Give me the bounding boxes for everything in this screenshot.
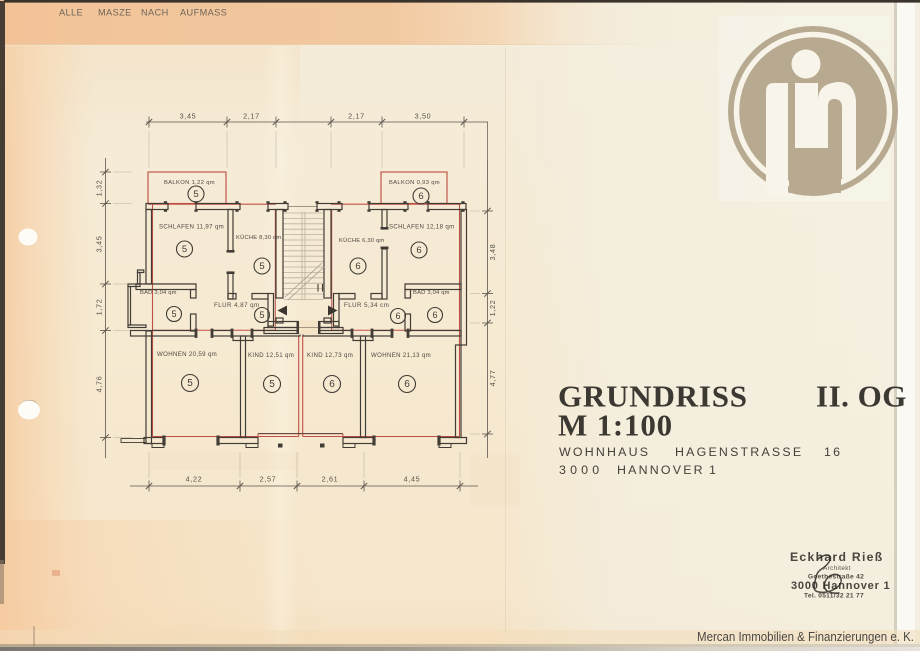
svg-text:Architekt: Architekt [823, 565, 851, 572]
svg-text:1,32: 1,32 [95, 180, 104, 197]
svg-text:Eckhard Rieß: Eckhard Rieß [790, 550, 884, 564]
svg-text:2,17: 2,17 [243, 112, 260, 121]
svg-text:MASZE: MASZE [98, 8, 132, 18]
svg-text:5: 5 [259, 261, 264, 272]
svg-text:II. OG: II. OG [816, 379, 907, 414]
svg-text:BAD 3,04 qm: BAD 3,04 qm [413, 290, 450, 296]
svg-text:HANNOVER: HANNOVER [617, 463, 705, 477]
svg-text:6: 6 [404, 379, 410, 390]
svg-text:KIND 12,51 qm: KIND 12,51 qm [248, 352, 294, 359]
svg-text:5: 5 [182, 244, 187, 255]
svg-text:5: 5 [269, 379, 275, 390]
svg-text:NACH: NACH [141, 8, 169, 18]
svg-text:FLUR 4,87 qm: FLUR 4,87 qm [214, 302, 260, 309]
svg-text:3000: 3000 [559, 463, 603, 477]
svg-text:KIND 12,73 qm: KIND 12,73 qm [307, 352, 353, 359]
svg-text:FLUR 5,34 cm: FLUR 5,34 cm [344, 302, 389, 309]
svg-text:4,77: 4,77 [488, 370, 497, 387]
svg-text:KÜCHE 6,30 qm: KÜCHE 6,30 qm [339, 237, 384, 244]
svg-text:2,57: 2,57 [260, 475, 277, 484]
svg-text:3,48: 3,48 [488, 244, 497, 261]
svg-text:3,45: 3,45 [95, 236, 104, 253]
svg-text:5: 5 [171, 309, 176, 319]
svg-text:3,50: 3,50 [415, 112, 432, 121]
svg-text:WOHNEN 20,59 qm: WOHNEN 20,59 qm [157, 351, 217, 358]
svg-text:16: 16 [824, 445, 842, 459]
svg-text:SCHLAFEN 12,18 qm: SCHLAFEN 12,18 qm [389, 224, 455, 231]
svg-text:BALKON 1,22 qm: BALKON 1,22 qm [164, 180, 215, 186]
svg-text:Mercan Immobilien & Finanzieru: Mercan Immobilien & Finanzierungen e. K. [697, 629, 914, 644]
svg-text:1,72: 1,72 [95, 299, 104, 316]
svg-text:2,61: 2,61 [322, 475, 339, 484]
svg-text:3,45: 3,45 [180, 112, 197, 121]
svg-text:BAD 3,04 qm: BAD 3,04 qm [140, 290, 177, 296]
svg-text:5: 5 [259, 310, 264, 320]
svg-text:2,17: 2,17 [348, 112, 365, 121]
svg-text:4,45: 4,45 [404, 475, 421, 484]
svg-text:KÜCHE 8,30 qm: KÜCHE 8,30 qm [236, 234, 281, 241]
svg-text:6: 6 [418, 191, 423, 202]
svg-text:6: 6 [416, 245, 421, 256]
svg-text:6: 6 [432, 310, 437, 320]
svg-text:HAGENSTRASSE: HAGENSTRASSE [675, 445, 803, 459]
svg-text:5: 5 [193, 189, 198, 200]
svg-text:WOHNHAUS: WOHNHAUS [559, 445, 650, 459]
svg-text:6: 6 [329, 379, 335, 390]
svg-text:1: 1 [709, 463, 718, 477]
svg-text:WOHNEN 21,13 qm: WOHNEN 21,13 qm [371, 352, 431, 359]
svg-text:6: 6 [355, 261, 360, 272]
svg-text:6: 6 [395, 311, 400, 321]
svg-text:BALKON 0,93 qm: BALKON 0,93 qm [389, 180, 440, 186]
svg-text:4,22: 4,22 [186, 475, 203, 484]
svg-text:ALLE: ALLE [59, 8, 83, 18]
svg-text:SCHLAFEN 11,97 qm: SCHLAFEN 11,97 qm [159, 224, 224, 231]
svg-text:5: 5 [187, 378, 193, 389]
svg-text:1,22: 1,22 [488, 300, 497, 317]
svg-text:AUFMASS: AUFMASS [180, 8, 227, 18]
svg-text:M 1:100: M 1:100 [558, 408, 673, 443]
svg-text:4,76: 4,76 [95, 376, 104, 393]
